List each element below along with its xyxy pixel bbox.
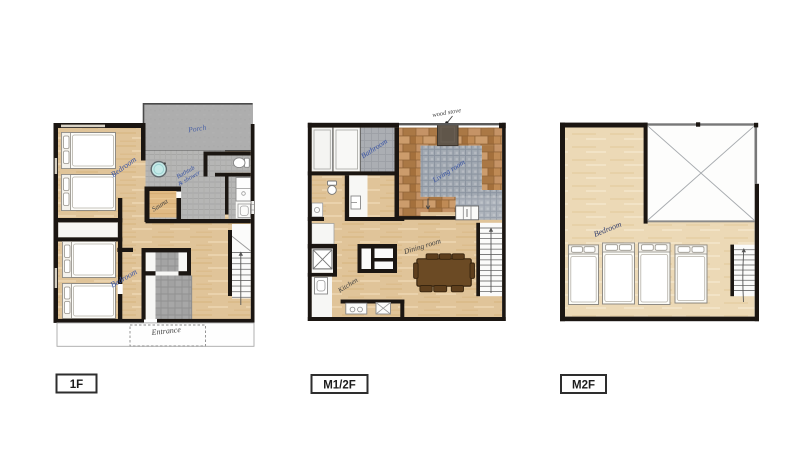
svg-text:M1/2F: M1/2F bbox=[323, 379, 356, 391]
svg-text:1F: 1F bbox=[70, 379, 83, 391]
svg-text:M2F: M2F bbox=[572, 379, 595, 391]
